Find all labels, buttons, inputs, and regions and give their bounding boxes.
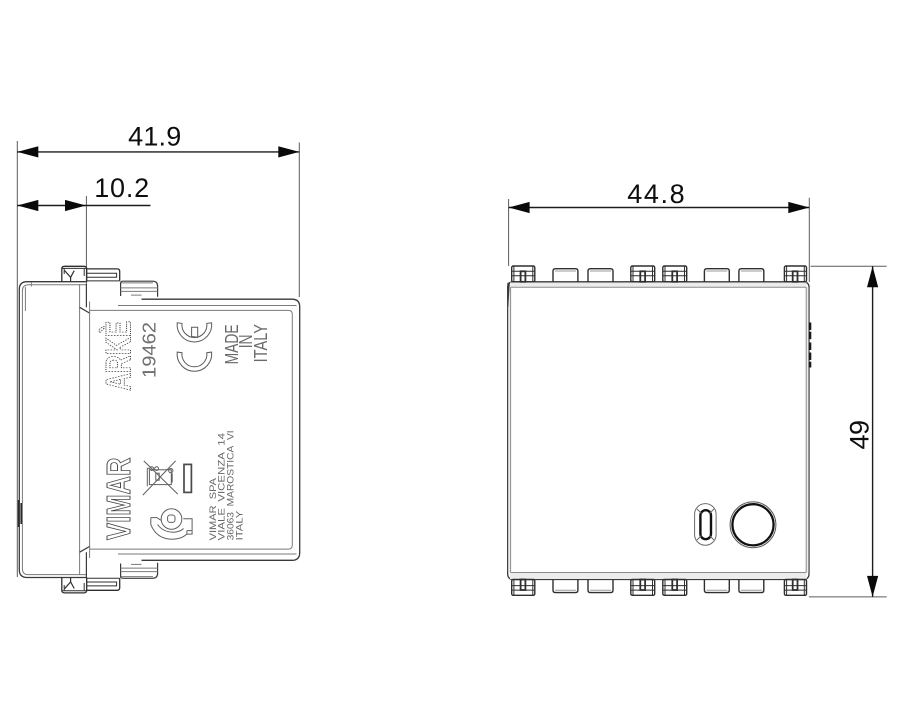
svg-text:10.2: 10.2 [94, 173, 149, 203]
svg-text:41.9: 41.9 [128, 121, 181, 151]
svg-text:19462: 19462 [140, 322, 160, 378]
svg-text:44.8: 44.8 [627, 179, 684, 209]
svg-text:ITALY: ITALY [251, 324, 271, 362]
svg-text:ITALY: ITALY [235, 511, 245, 541]
svg-text:VIMAR: VIMAR [100, 457, 137, 540]
svg-text:ARKÈ: ARKÈ [99, 321, 139, 391]
svg-text:49: 49 [844, 420, 874, 450]
